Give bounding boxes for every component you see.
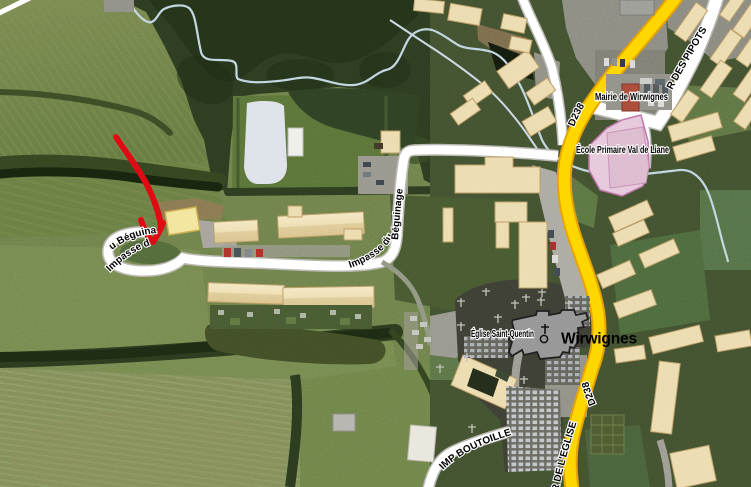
svg-text:Église Saint-Quentin: Église Saint-Quentin — [471, 327, 534, 340]
svg-text:Mairie de Wirwignes: Mairie de Wirwignes — [595, 91, 668, 103]
svg-text:École Primaire Val de Liane: École Primaire Val de Liane — [576, 143, 669, 156]
svg-text:Wirwignes: Wirwignes — [561, 331, 637, 348]
